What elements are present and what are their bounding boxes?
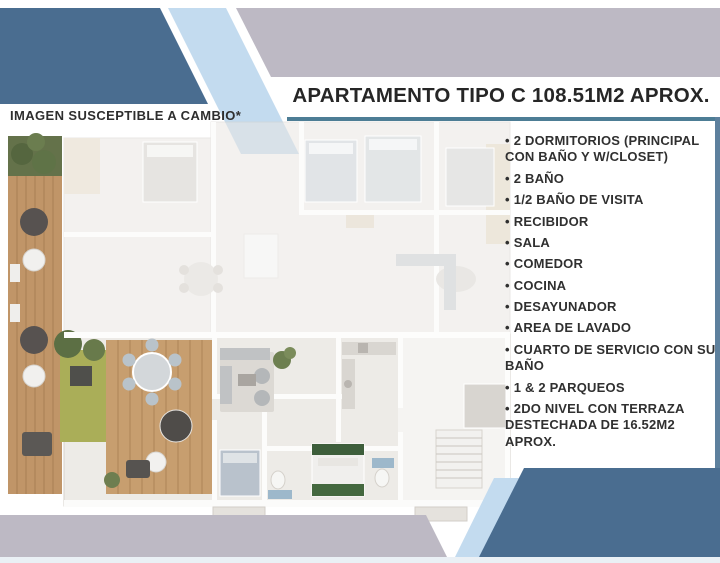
feature-item: •CUARTO DE SERVICIO CON SU BAÑO [505,342,717,375]
bullet: • [505,401,510,416]
bullet: • [505,320,510,335]
feature-item: •COMEDOR [505,256,717,272]
feature-item: •SALA [505,235,717,251]
feature-text: DESAYUNADOR [514,299,617,314]
feature-text: AREA DE LAVADO [514,320,631,335]
bullet: • [505,278,510,293]
feature-text: 1/2 BAÑO DE VISITA [514,192,644,207]
feature-item: •COCINA [505,278,717,294]
feature-item: •2DO NIVEL CON TERRAZA DESTECHADA DE 16.… [505,401,717,450]
feature-item: •2 DORMITORIOS (PRINCIPAL CON BAÑO Y W/C… [505,133,717,166]
top-grey-band [236,8,720,77]
feature-text: 1 & 2 PARQUEOS [514,380,625,395]
bottom-edge-strip [0,557,720,563]
feature-item: •RECIBIDOR [505,214,717,230]
image-disclaimer-note: IMAGEN SUSCEPTIBLE A CAMBIO* [10,108,270,123]
bullet: • [505,235,510,250]
bullet: • [505,171,510,186]
feature-text: RECIBIDOR [514,214,589,229]
feature-list: •2 DORMITORIOS (PRINCIPAL CON BAÑO Y W/C… [505,133,717,455]
bullet: • [505,192,510,207]
feature-item: •DESAYUNADOR [505,299,717,315]
bullet: • [505,214,510,229]
page-title: APARTAMENTO TIPO C 108.51M2 APROX. [286,79,716,113]
feature-item: •1 & 2 PARQUEOS [505,380,717,396]
feature-item: •2 BAÑO [505,171,717,187]
title-underline [287,117,720,121]
feature-text: COCINA [514,278,566,293]
feature-text: CUARTO DE SERVICIO CON SU BAÑO [505,342,715,373]
bullet: • [505,133,510,148]
feature-text: 2 DORMITORIOS (PRINCIPAL CON BAÑO Y W/CL… [505,133,699,164]
floor-plan-render [6,114,512,524]
feature-item: •1/2 BAÑO DE VISITA [505,192,717,208]
bullet: • [505,380,510,395]
feature-item: •AREA DE LAVADO [505,320,717,336]
feature-text: 2DO NIVEL CON TERRAZA DESTECHADA DE 16.5… [505,401,684,449]
feature-text: 2 BAÑO [514,171,564,186]
top-dark-blue-shape [0,8,208,104]
floor-plan-faded-unit [64,122,510,336]
bottom-dark-blue-shape [479,468,720,557]
bullet: • [505,256,510,271]
feature-text: COMEDOR [514,256,583,271]
feature-text: SALA [514,235,550,250]
bullet: • [505,342,510,357]
bullet: • [505,299,510,314]
